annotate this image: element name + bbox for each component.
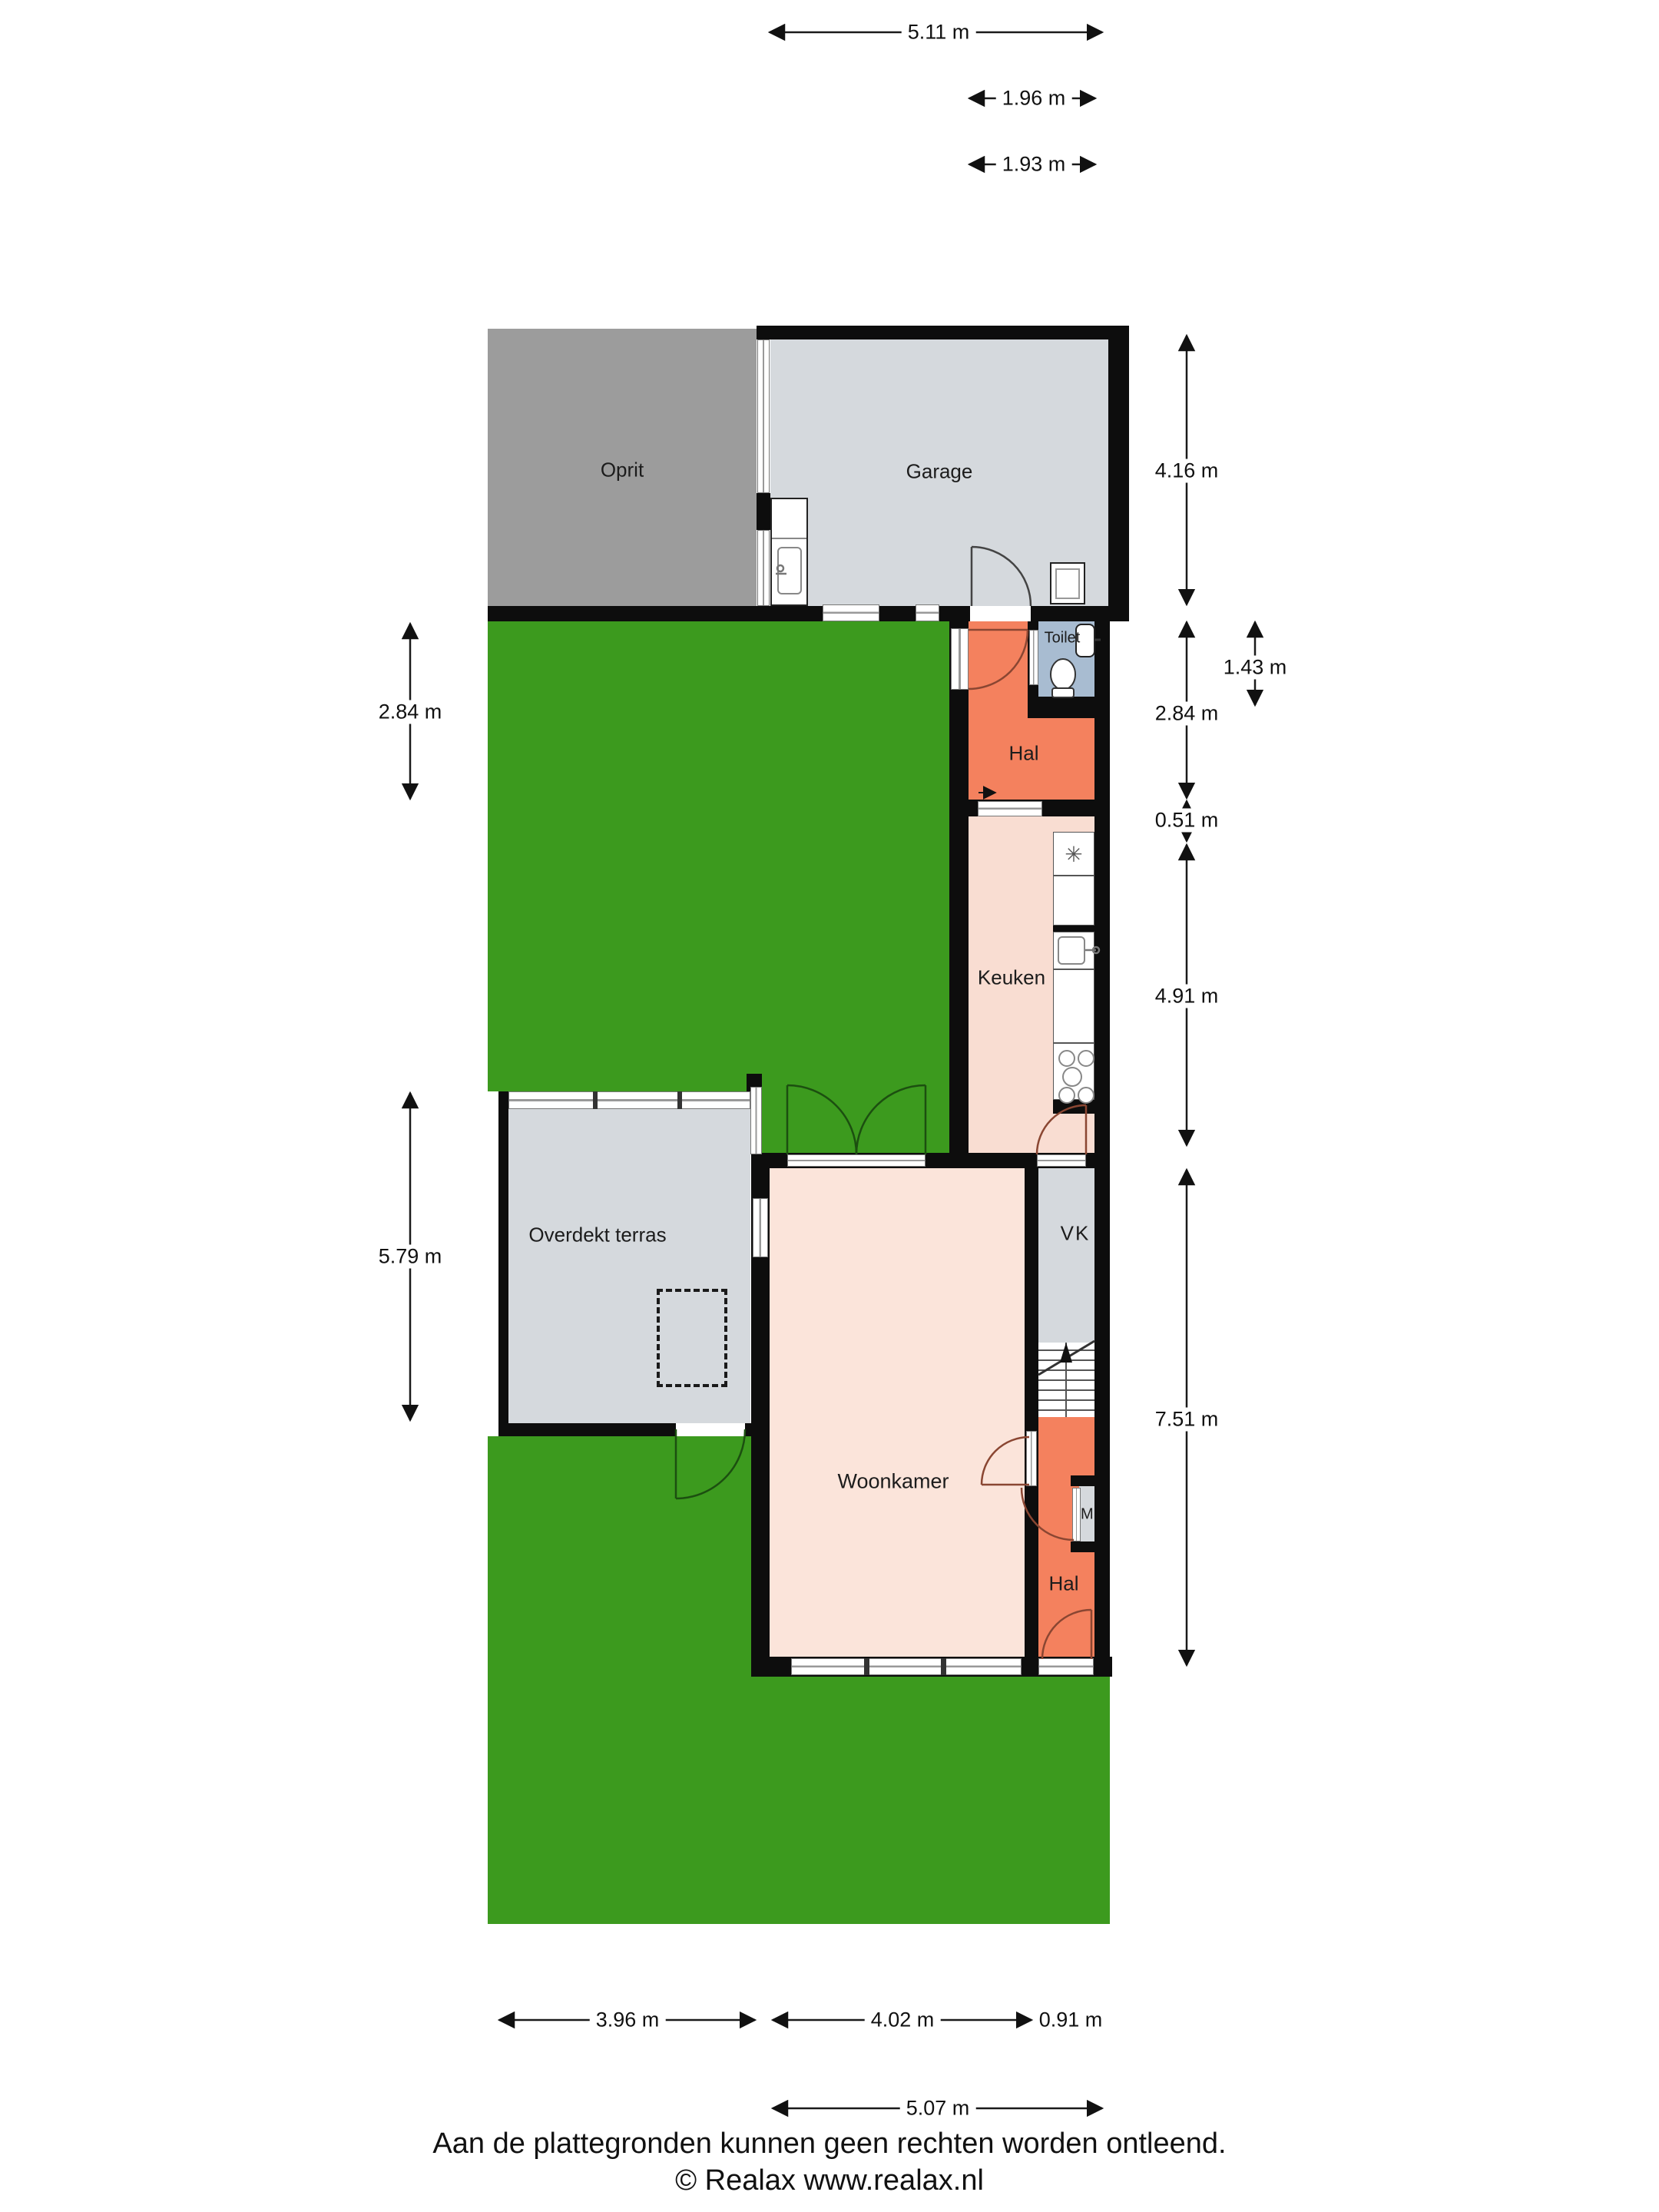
kitchen-hob [1053, 1043, 1094, 1100]
wall-counter-stub1 [1053, 926, 1094, 932]
garage-sink-shelf-line [772, 538, 806, 539]
dim-left-284: 2.84 m [373, 700, 449, 724]
room-label-garage: Garage [906, 460, 973, 484]
dim-right-491: 4.91 m [1149, 985, 1225, 1008]
wall-vk-divider [1025, 1164, 1038, 1657]
garage-door-strip2 [757, 530, 770, 606]
garage-appliance-inner [1055, 568, 1080, 599]
garage-window-a [823, 604, 879, 621]
garage-door-strip [757, 339, 770, 493]
fridge-vent-icon: ✳ [1065, 843, 1082, 866]
front-window-mullion [864, 1658, 869, 1675]
dim-top-196: 1.96 m [996, 87, 1072, 111]
wall-mk-top [1071, 1475, 1094, 1486]
front-window [791, 1658, 1022, 1675]
kitchen-fridge: ✳ [1053, 832, 1094, 876]
garage-window-b [916, 604, 939, 621]
dim-right-051: 0.51 m [1152, 809, 1222, 833]
kitchen-counter-2 [1053, 969, 1094, 1043]
wall-mk-bottom [1071, 1541, 1094, 1552]
stairs-area [1038, 1343, 1094, 1417]
hal-top-area [969, 621, 1028, 800]
wall-divider-mid [757, 493, 770, 530]
woonkamer-area [770, 1168, 1025, 1657]
wall-right-lower [1094, 606, 1110, 1677]
room-label-hal-top: Hal [1008, 742, 1038, 766]
room-label-hal-bottom: Hal [1048, 1572, 1078, 1596]
dim-left-579: 5.79 m [373, 1245, 449, 1269]
hal-keuken-opening [978, 801, 1042, 816]
wall-terras-left [498, 1091, 508, 1436]
floorplan-page: MK ✳ [0, 0, 1659, 2212]
dim-bottom-396: 3.96 m [590, 2008, 666, 2032]
wall-terras-bottom-left [498, 1423, 676, 1436]
vk-area [1038, 1164, 1094, 1343]
garden-bottom [488, 1677, 1110, 1924]
room-label-keuken: Keuken [978, 966, 1045, 990]
room-label-vk: VK [1061, 1222, 1091, 1246]
garden-left [488, 1436, 751, 1677]
garage-sink-basin [777, 547, 802, 594]
dim-right-751: 7.51 m [1149, 1408, 1225, 1432]
garden-strip [762, 1091, 949, 1153]
room-label-toilet: Toilet [1045, 630, 1081, 647]
footer-copyright: © Realax www.realax.nl [0, 2164, 1659, 2197]
dim-right-284: 2.84 m [1149, 702, 1225, 726]
front-window-mullion [941, 1658, 946, 1675]
room-label-oprit: Oprit [601, 459, 644, 482]
room-label-terras: Overdekt terras [528, 1224, 666, 1247]
hal-woonkamer-door [1026, 1431, 1037, 1486]
keuken-vk-door-strip [1037, 1154, 1086, 1167]
woonkamer-left-window [753, 1198, 768, 1257]
hal-garden-door [951, 628, 969, 690]
dim-top-511: 5.11 m [902, 21, 976, 45]
dim-bottom-091: 0.91 m [1037, 2008, 1105, 2032]
footer-disclaimer: Aan de plattegronden kunnen geen rechten… [0, 2128, 1659, 2161]
wall-garage-right [1108, 326, 1129, 606]
wall-counter-stub2 [1053, 1100, 1094, 1114]
wall-house-left [949, 621, 969, 1168]
mk-door [1072, 1488, 1081, 1541]
garage-door-opening [970, 606, 1031, 621]
french-door-strip [787, 1154, 926, 1167]
wall-toilet-bottom [1038, 697, 1094, 718]
terras-window-mullion [677, 1091, 682, 1109]
toilet-door [1029, 630, 1038, 685]
wall-terras-bottom-right [745, 1423, 770, 1436]
terras-window-mullion [593, 1091, 598, 1109]
front-door-strip [1038, 1658, 1094, 1675]
kitchen-sink-basin [1058, 936, 1085, 965]
terras-right-window [750, 1087, 762, 1154]
room-label-woonkamer: Woonkamer [837, 1470, 949, 1494]
dim-right-143: 1.43 m [1217, 656, 1293, 680]
dim-top-193: 1.93 m [996, 153, 1072, 177]
terras-top-window [508, 1091, 750, 1109]
terras-skylight [657, 1289, 727, 1387]
wall-garden-band [488, 606, 1129, 621]
kitchen-counter-1 [1053, 876, 1094, 926]
garden-top [488, 621, 949, 1091]
dim-bottom-402: 4.02 m [865, 2008, 941, 2032]
wall-top [757, 326, 1129, 339]
dim-bottom-507: 5.07 m [900, 2097, 976, 2121]
dim-right-416: 4.16 m [1149, 459, 1225, 483]
